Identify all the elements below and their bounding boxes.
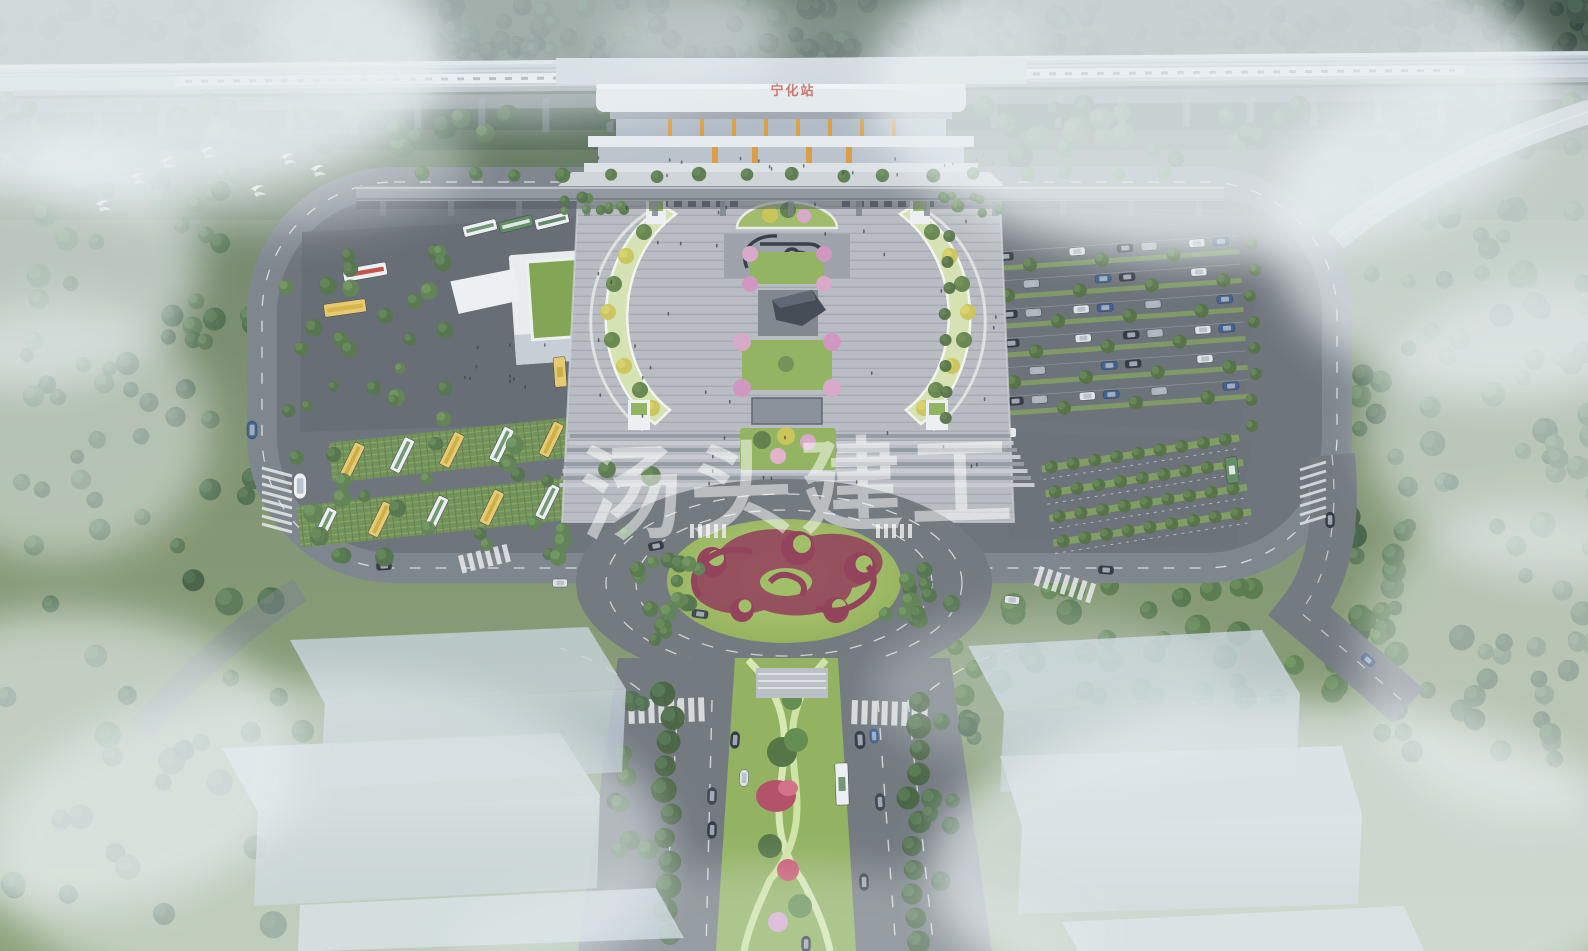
- rendering-canvas: 宁化站: [0, 0, 1588, 951]
- watermark-text: 汤头建工: [578, 422, 1022, 556]
